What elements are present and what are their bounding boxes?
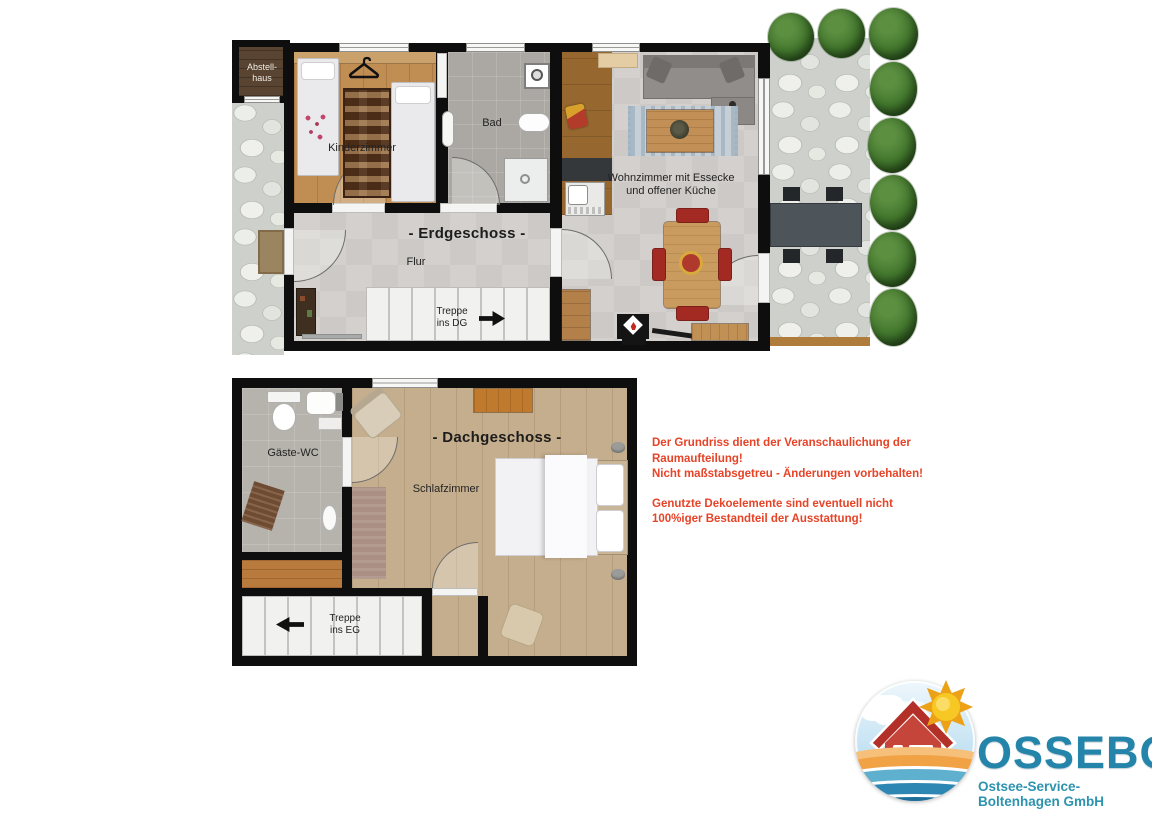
roof-window-handle <box>611 569 625 580</box>
bed-pillow <box>596 510 624 552</box>
floor-plan-canvas: Abstell- haus <box>0 0 1152 815</box>
outdoor-chair <box>826 249 843 263</box>
dg-title: - Dachgeschoss - <box>432 432 561 445</box>
shoe-rack <box>302 334 362 339</box>
dresser <box>474 389 532 412</box>
roof-window-handle <box>611 442 625 453</box>
bush <box>768 13 814 61</box>
disclaimer-paragraph-1: Der Grundriss dient der Veranschaulichun… <box>652 436 942 483</box>
bed-pillow <box>301 62 335 80</box>
toilet-bowl <box>272 403 296 431</box>
bush <box>868 118 916 173</box>
wardrobe-item <box>300 296 305 301</box>
window <box>339 43 409 52</box>
bed-pillow <box>395 86 431 104</box>
dg-wall-right <box>627 378 637 666</box>
shed-window <box>244 96 280 103</box>
window <box>592 43 640 52</box>
room-label-bad: Bad <box>482 117 502 130</box>
window <box>758 78 770 175</box>
terrace-door <box>758 253 770 303</box>
bathroom-sink <box>518 113 550 132</box>
logo-company-name: OSSEBO <box>977 727 1152 779</box>
eg-title: - Erdgeschoss - <box>408 228 525 241</box>
sideboard <box>562 290 590 340</box>
garden-edge-strip <box>770 337 870 346</box>
landing-wood-floor <box>242 560 342 588</box>
table-plant <box>670 120 689 139</box>
logo-subtitle: Ostsee-Service-Boltenhagen GmbH <box>978 779 1152 809</box>
towel-radiator <box>442 111 454 147</box>
dg-wall-left <box>232 378 242 666</box>
outdoor-chair <box>783 249 800 263</box>
table-centerpiece <box>679 251 703 275</box>
wc-sink <box>306 391 336 415</box>
room-label-gaeste-wc: Gäste-WC <box>267 447 318 460</box>
window <box>372 378 438 388</box>
hanger-icon <box>348 56 380 80</box>
bush <box>869 8 918 60</box>
door-gap-wc <box>342 437 352 487</box>
dining-chair <box>652 248 666 281</box>
disclaimer-block: Der Grundriss dient der Veranschaulichun… <box>652 436 942 528</box>
wardrobe-item <box>307 310 312 317</box>
bed-pillow <box>596 464 624 506</box>
cooktop <box>562 158 612 181</box>
room-label-wohnzimmer: Wohnzimmer mit Essecke und offener Küche <box>608 172 735 197</box>
door-mat <box>258 230 284 274</box>
stair-landing <box>432 596 478 656</box>
dg-wall-bottom <box>232 656 637 666</box>
dining-chair <box>676 208 709 223</box>
disclaimer-paragraph-2: Genutzte Dekoelemente sind eventuell nic… <box>652 497 942 528</box>
door-gap-schlafzimmer <box>432 588 478 596</box>
wall-landing-right <box>478 596 488 656</box>
outdoor-chair <box>783 187 800 201</box>
flower-blanket-decor <box>303 112 329 144</box>
toilet-tank <box>267 391 301 403</box>
door-gap-kz-bad <box>437 53 447 98</box>
window <box>466 43 525 52</box>
outdoor-table <box>770 203 862 247</box>
laundry-basket <box>321 504 338 532</box>
wall-flur-wohnzimmer <box>550 52 562 341</box>
dining-chair <box>718 248 732 281</box>
wc-cabinet <box>336 393 343 411</box>
outdoor-chair <box>826 187 843 201</box>
hall-wardrobe <box>296 288 316 336</box>
bush <box>870 289 917 346</box>
room-label-schlafzimmer: Schlafzimmer <box>413 483 480 496</box>
sun-icon <box>917 678 975 736</box>
bench <box>692 324 748 340</box>
dining-chair <box>676 306 709 321</box>
room-label-flur: Flur <box>407 256 426 269</box>
door-gap-wohnzimmer <box>550 228 562 277</box>
stone-path <box>232 103 284 355</box>
sink-drainboard <box>568 207 602 214</box>
bush <box>868 232 916 287</box>
shower-drain <box>520 174 530 184</box>
bush <box>870 175 917 230</box>
bush <box>818 9 865 58</box>
wall-wc-bottom <box>242 552 352 560</box>
bush <box>870 62 917 116</box>
stairs-eg-label: Treppe ins DG <box>436 306 467 330</box>
stairs-dg-label: Treppe ins EG <box>329 613 360 637</box>
kitchen-sink-basin <box>568 185 588 205</box>
entrance-door <box>284 228 294 275</box>
wall-stairs-right <box>422 596 432 656</box>
eg-wall-left <box>284 43 294 351</box>
duvet-fold <box>545 455 587 558</box>
room-label-abstellhaus: Abstell- haus <box>247 62 277 83</box>
wall-stairs-top <box>242 588 432 596</box>
washing-machine-drum <box>531 69 543 81</box>
bedroom-rug <box>352 487 386 579</box>
room-label-kinderzimmer: Kinderzimmer <box>328 142 396 155</box>
wc-shelf <box>318 417 342 430</box>
stove-base <box>622 339 646 345</box>
eg-wall-bottom <box>284 341 770 351</box>
shelf-mat <box>598 53 638 68</box>
